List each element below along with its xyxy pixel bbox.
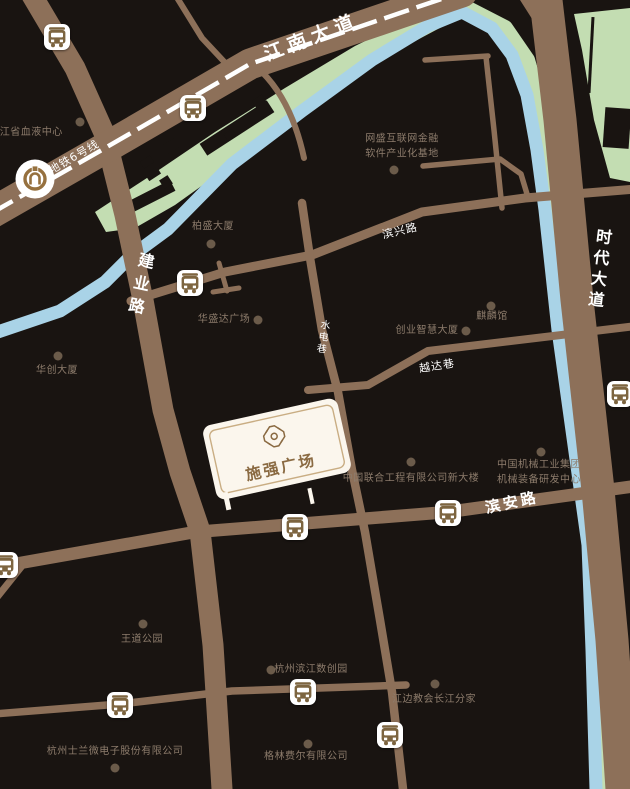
bus-stop-icon — [107, 692, 133, 718]
poi-dot — [254, 316, 263, 325]
poi-label: 杭州士兰微电子股份有限公司 — [47, 745, 184, 760]
poi-label: 华创大厦 — [36, 364, 78, 379]
bus-stop-icon — [377, 722, 403, 748]
bus-stop-icon — [177, 270, 203, 296]
bus-stop-icon — [607, 381, 630, 407]
poi-dot — [111, 764, 120, 773]
road-name-label: 时代大道 — [585, 227, 611, 312]
poi-label: 江边教会长江分家 — [392, 693, 476, 708]
poi-dot — [431, 680, 440, 689]
bus-stop-icon — [180, 95, 206, 121]
bus-stop-icon — [44, 24, 70, 50]
poi-label: 网盛互联网金融 软件产业化基地 — [365, 133, 439, 162]
labels-and-markers-layer: 浙江省血液中心网盛互联网金融 软件产业化基地柏盛大厦华盛达广场麒麟馆创业智慧大厦… — [0, 0, 630, 789]
poi-label: 中国机械工业集团 机械装备研发中心 — [497, 459, 581, 488]
poi-dot — [54, 352, 63, 361]
poi-label: 麒麟馆 — [476, 310, 508, 325]
bus-stop-icon — [0, 552, 18, 578]
poi-label: 杭州滨江数创园 — [274, 663, 348, 678]
poi-dot — [537, 448, 546, 457]
road-name-label: 江南大道 — [262, 11, 362, 65]
road-name-label: 地铁6号线 — [47, 138, 101, 176]
poi-label: 浙江省血液中心 — [0, 126, 63, 141]
poi-label: 柏盛大厦 — [192, 220, 234, 235]
poi-dot — [304, 740, 313, 749]
bus-stop-icon — [282, 514, 308, 540]
road-name-label: 水电巷 — [313, 318, 329, 355]
poi-label: 格林费尔有限公司 — [264, 750, 348, 765]
poi-dot — [407, 458, 416, 467]
poi-dot — [390, 166, 399, 175]
bus-stop-icon — [435, 500, 461, 526]
poi-dot — [139, 620, 148, 629]
poi-label: 创业智慧大厦 — [396, 324, 459, 339]
road-name-label: 滨兴路 — [381, 222, 419, 241]
poi-label: 华盛达广场 — [198, 313, 251, 328]
road-name-label: 越达巷 — [418, 358, 455, 374]
road-name-label: 建业路 — [124, 251, 154, 322]
road-name-label: 滨安路 — [484, 490, 540, 516]
poi-dot — [207, 240, 216, 249]
poi-dot — [76, 118, 85, 127]
bus-stop-icon — [290, 679, 316, 705]
poi-label: 王道公园 — [121, 633, 163, 648]
poi-dot — [462, 327, 471, 336]
poi-label: 中国联合工程有限公司新大楼 — [343, 472, 480, 487]
